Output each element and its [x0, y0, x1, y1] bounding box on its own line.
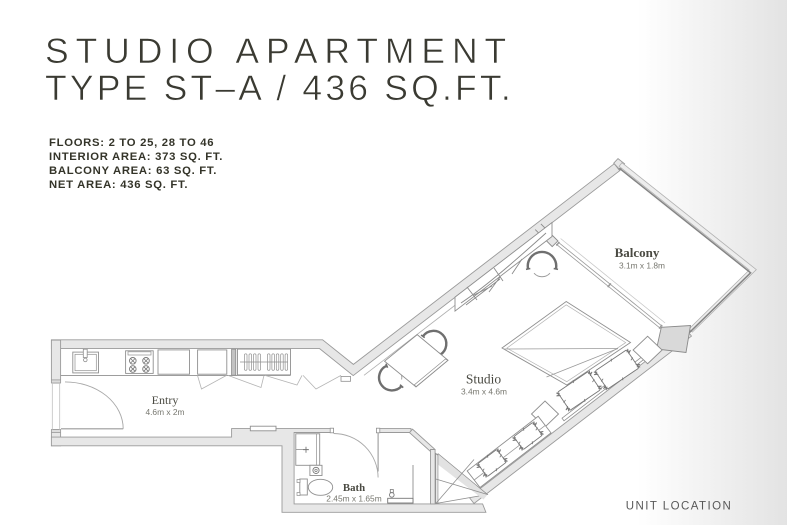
svg-text:Entry: Entry: [152, 393, 179, 407]
svg-text:4.6m x 2m: 4.6m x 2m: [145, 407, 184, 417]
svg-text:UNIT LOCATION: UNIT LOCATION: [626, 501, 733, 513]
svg-text:3.4m x 4.6m: 3.4m x 4.6m: [461, 387, 507, 397]
svg-text:Balcony: Balcony: [615, 245, 660, 260]
svg-text:3.1m x 1.8m: 3.1m x 1.8m: [619, 261, 665, 271]
svg-text:Studio: Studio: [466, 372, 502, 387]
svg-text:2.45m x 1.65m: 2.45m x 1.65m: [326, 494, 381, 504]
svg-text:Bath: Bath: [343, 482, 365, 494]
